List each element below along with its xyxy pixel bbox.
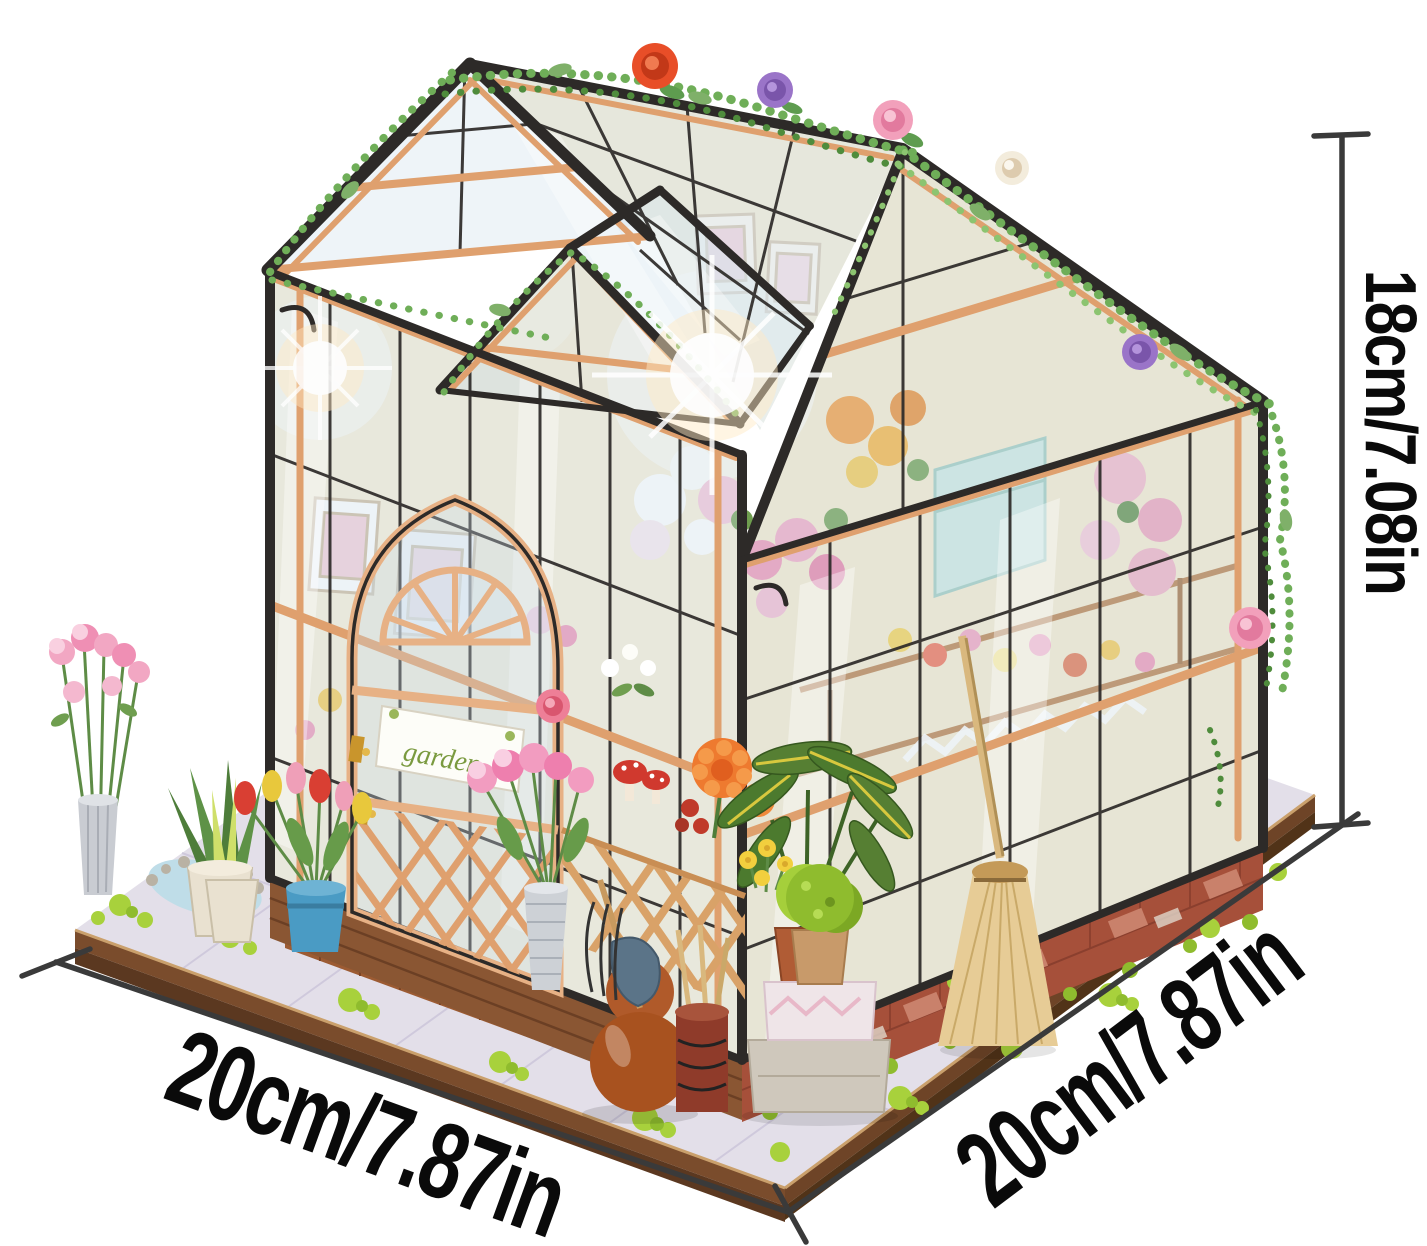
rose-cream: [995, 151, 1029, 185]
product-photo-canvas: garden: [0, 0, 1427, 1246]
height-dimension-cap-top: [1314, 134, 1368, 136]
rose-on-door: [536, 689, 570, 723]
pink-bouquet-left: [49, 624, 150, 895]
rose-pink-right: [1229, 607, 1271, 649]
rose-purple-right: [1122, 334, 1158, 370]
rose-purple: [757, 72, 804, 116]
height-dimension-label: 18cm/7.08in: [1354, 270, 1426, 594]
